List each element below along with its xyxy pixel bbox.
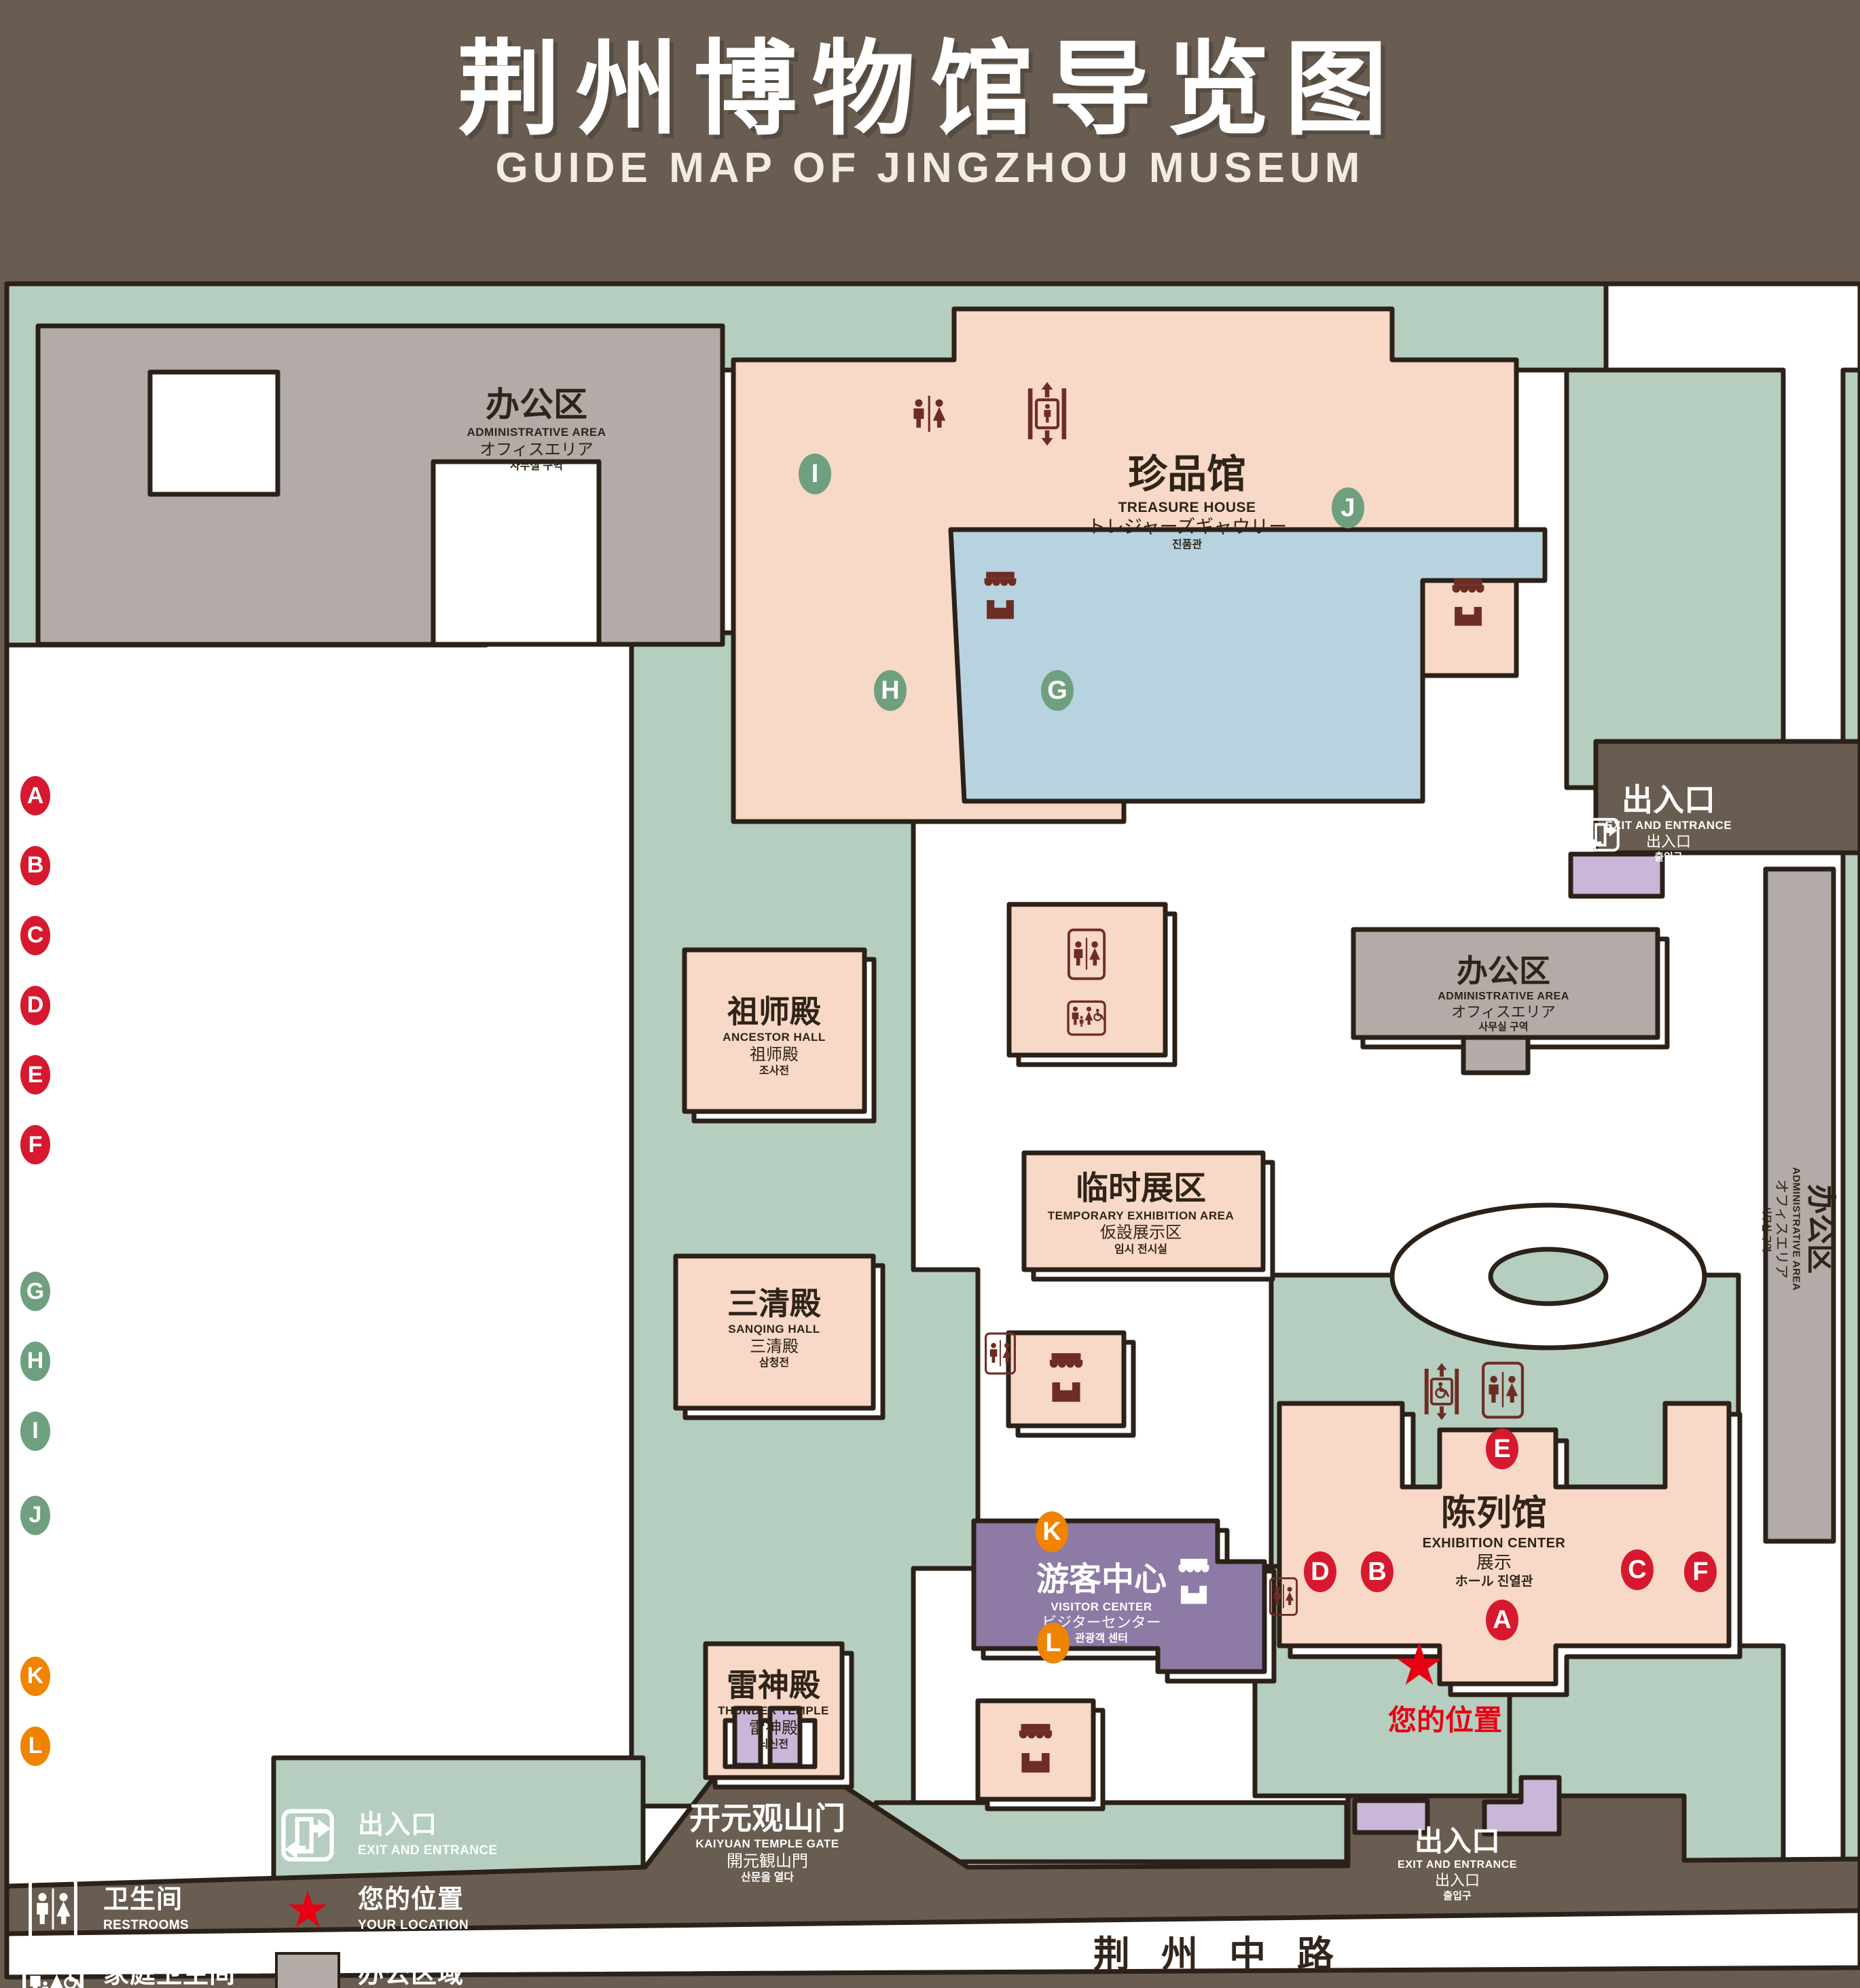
label-road: 荆州中路 — [1093, 1924, 1365, 1978]
item-name-en: JIANGHAN PLAIN PRIMITIVE CULTURE EXHIBIT… — [65, 951, 363, 965]
item-name-zh: 江汉平原原始文化展 — [65, 915, 363, 949]
lawn-right-edge — [1843, 370, 1860, 1860]
office-area-swatch — [275, 1952, 340, 1988]
symbol-label-zh: 家庭卫生间 — [103, 1961, 240, 1988]
badge-j: J — [20, 1496, 50, 1535]
item-floor: 2F — [474, 1125, 509, 1159]
admin-right-tab — [1463, 1037, 1528, 1073]
symbol-label-zh: 卫生间 — [103, 1886, 189, 1915]
item-floor: 2F — [474, 986, 509, 1020]
item-name-en: THE PHOENIX IN FIRE "MURAL PAINTING — [65, 812, 340, 826]
badge-e: E — [20, 1055, 50, 1094]
section-title-en: EXHIBITION CENTER — [170, 721, 456, 752]
item-floor: 1-2F — [448, 1496, 509, 1530]
store-icon — [1017, 1722, 1054, 1782]
legend-item-i: I 五大夫遂——凤凰山168号汉墓展 WUDAFU—EXHIBITION OF … — [20, 1410, 526, 1476]
item-name-zh: 五大夫遂——凤凰山168号汉墓展 — [65, 1410, 514, 1445]
store-icon — [20, 1803, 86, 1868]
restroom-icon — [20, 1877, 86, 1943]
item-name-en: INTERACTIVE EXPERIENCE HALL — [65, 1378, 261, 1392]
store-icon — [983, 570, 1018, 629]
legend-item-h: H 互动体验厅 INTERACTIVE EXPERIENCE HALL 1F — [20, 1340, 526, 1392]
badge-h: H — [20, 1342, 50, 1381]
badge-l: L — [20, 1727, 50, 1766]
symbol-office-area: 办公区域 OFFICE AREA — [275, 1951, 526, 1988]
item-name-zh: 《火中的凤凰》壁画 — [65, 775, 340, 809]
item-floor: 1F — [474, 1657, 509, 1691]
label-kaiyuan-gate: 开元观山门 KAIYUAN TEMPLE GATE 開元観山門 산문을 열다 — [689, 1799, 845, 1885]
map-badge-l: L — [1037, 1623, 1070, 1663]
section-title-zh: 珍品馆 — [20, 1194, 147, 1253]
item-name-zh: 互动体验厅 — [65, 1340, 261, 1375]
label-temporary-exhibition: 临时展区 TEMPORARY EXHIBITION AREA 仮設展示区 임시 … — [1048, 1169, 1234, 1256]
map-badge-a: A — [1486, 1600, 1518, 1640]
item-name-zh: 荆州出土瓷器展 — [65, 984, 359, 1019]
item-name-zh: 荆州出土简牍展 — [65, 1054, 369, 1088]
legend-item-l: L 医疗点 CLINIC 1F — [20, 1725, 526, 1777]
badge-a: A — [20, 776, 50, 815]
your-location-label: 您的位置 — [1388, 1697, 1502, 1739]
section-title-en: TREASURE HOUSE — [170, 1217, 433, 1247]
symbol-label-en: EXIT AND ENTRANCE — [358, 1843, 498, 1858]
item-name-en: CLINIC — [65, 1762, 157, 1776]
legend-section-visitor-center: 游客中心 VISITOR CENTER — [20, 1579, 526, 1638]
item-name-zh: 放映厅 — [65, 1270, 179, 1305]
restroom-icon — [908, 387, 950, 445]
store-icon — [1048, 1351, 1084, 1412]
legend-panel: 陈列馆 EXHIBITION CENTER A 《火中的凤凰》壁画 THE PH… — [20, 688, 526, 1988]
label-thunder-temple: 雷神殿 THUNDER TEMPLE 雷神殿 뇌신전 — [718, 1666, 829, 1752]
label-admin-right: 办公区 ADMINISTRATIVE AREA オフィスエリア 사무실 구역 — [1438, 952, 1569, 1034]
item-name-en: ROMANTIC CHARM OF THE CRIMSON LACQUERS—E… — [65, 1531, 445, 1560]
family-restroom-icon — [1067, 1001, 1106, 1039]
label-exhibition-center: 陈列馆 EXHIBITION CENTER 展示 ホール 진열관 — [1423, 1492, 1566, 1589]
legend-item-e: E 荆州出土简牍展 JINGZHOU EXCAVATED BAMBOO SLIP… — [20, 1054, 526, 1105]
item-name-zh: 医疗点 — [65, 1725, 157, 1760]
badge-f: F — [20, 1125, 50, 1164]
badge-d: D — [20, 986, 50, 1025]
symbol-label-zh: 办公区域 — [358, 1961, 464, 1988]
label-admin-top-left: 办公区 ADMINISTRATIVE AREA オフィスエリア 사무실 구역 — [467, 384, 606, 473]
accessible-elevator-icon — [1423, 1363, 1460, 1424]
label-treasure-house: 珍品馆 TREASURE HOUSE トレジャーズギャウリー 진품관 — [1087, 451, 1287, 552]
symbol-your-location: ★ 您的位置 YOUR LOCATION — [275, 1876, 526, 1944]
symbol-family-restrooms: 家庭卫生间 FAMILY RESTROOMS — [20, 1951, 275, 1988]
item-name-en: JINGZHOU EXCAVATED BAMBOO SLIPS EXHIBITI… — [65, 1091, 369, 1105]
legend-item-d: D 荆州出土瓷器展 JINGZHOU UNEARTHED PORCELAIN E… — [20, 984, 526, 1036]
item-name-zh: 荆州出土铜器展 — [65, 845, 371, 879]
item-name-en: JINGZHOU UNEARTHED BRONZE WARE EXHIBITIO… — [65, 881, 371, 896]
item-name-en: SECURITY — [65, 1693, 187, 1707]
family-restroom-icon — [20, 1957, 86, 1988]
lawn-right-upper — [1567, 370, 1783, 788]
restroom-icon — [985, 1333, 1016, 1378]
map-badge-g: G — [1041, 670, 1074, 711]
item-floor: 2F — [474, 1055, 509, 1089]
item-name-en: JINGZHOU UNEARTHED PORCELAIN EXHIBITIONE — [65, 1021, 359, 1035]
symbol-label-zh: 文创商店 — [103, 1811, 209, 1840]
item-floor: 1F — [474, 1727, 509, 1761]
badge-k: K — [20, 1657, 50, 1696]
item-floor: 1F — [474, 1342, 509, 1376]
item-floor: 1F — [474, 846, 509, 880]
item-floor: 1F — [474, 1272, 509, 1306]
item-floor: 1F — [474, 916, 509, 950]
symbol-label-zh: 出入口 — [358, 1811, 498, 1840]
badge-g: G — [20, 1272, 50, 1311]
store-icon — [1451, 576, 1486, 636]
label-admin-strip: 办公区 ADMINISTRATIVE AREA オフィスエリア 사무실 구역 — [1761, 1167, 1839, 1291]
item-floor: 1F — [474, 776, 509, 810]
symbol-exit: 出入口 EXIT AND ENTRANCE — [275, 1801, 526, 1869]
label-exit-top-right: 出入口 EXIT AND ENTRANCE 出入口 출입구 — [1605, 781, 1732, 864]
exit-icon — [275, 1809, 340, 1862]
legend-section-exhibition-center: 陈列馆 EXHIBITION CENTER — [20, 698, 526, 757]
restroom-icon — [1068, 929, 1106, 984]
legend-item-a: A 《火中的凤凰》壁画 THE PHOENIX IN FIRE "MURAL P… — [20, 775, 526, 826]
section-title-zh: 游客中心 — [20, 1579, 189, 1638]
admin-courtyard-1 — [150, 372, 278, 494]
location-star-icon: ★ — [1393, 1636, 1445, 1694]
map-badge-d: D — [1304, 1551, 1336, 1592]
map-badge-c: C — [1621, 1549, 1654, 1590]
map-badge-h: H — [874, 670, 907, 711]
item-name-zh: 安全保卫 — [65, 1655, 187, 1690]
symbol-label-en: RESTROOMS — [103, 1918, 189, 1933]
badge-i: I — [20, 1412, 50, 1451]
legend-item-b: B 荆州出土铜器展 JINGZHOU UNEARTHED BRONZE WARE… — [20, 845, 526, 896]
admin-building-top-left — [38, 326, 723, 644]
map-badge-i: I — [799, 454, 831, 494]
item-name-en: PROJECTION HALL — [65, 1308, 179, 1322]
legend-item-j: J 丹漆神韵——楚秦汉漆器精品展 ROMANTIC CHARM OF THE C… — [20, 1494, 526, 1560]
legend-item-g: G 放映厅 PROJECTION HALL 1F — [20, 1270, 526, 1322]
map-badge-k: K — [1036, 1511, 1068, 1552]
legend-item-f: F 荆州出土玉器展 JINGZHOU UNEARTHED JADE EXHIBI… — [20, 1124, 526, 1175]
admin-courtyard-2 — [433, 462, 599, 644]
legend-section-treasure-house: 珍品馆 TREASURE HOUSE — [20, 1194, 526, 1253]
item-name-en: JINGZHOU UNEARTHED JADE EXHIBITION — [65, 1161, 313, 1175]
garden-island — [1491, 1249, 1606, 1304]
location-star-icon: ★ — [275, 1885, 340, 1935]
legend-item-k: K 安全保卫 SECURITY 1F — [20, 1655, 526, 1707]
item-name-zh: 荆州出土玉器展 — [65, 1124, 313, 1158]
map-badge-j: J — [1332, 487, 1364, 528]
item-floor: 2F — [474, 1412, 509, 1446]
section-title-zh: 陈列馆 — [20, 698, 147, 757]
section-title-en: VISITOR CENTER — [212, 1602, 449, 1632]
symbol-label-en: YOUR LOCATION — [358, 1918, 469, 1933]
item-name-zh: 丹漆神韵——楚秦汉漆器精品展 — [65, 1494, 493, 1529]
label-sanqing-hall: 三清殿 SANQING HALL 三清殿 삼청전 — [727, 1285, 821, 1370]
exit-icon — [1586, 818, 1620, 855]
symbol-label-zh: 您的位置 — [358, 1886, 469, 1915]
restroom-icon — [1482, 1362, 1524, 1422]
item-name-en: WUDAFU—EXHIBITION OF NO.168 HAN TOMB FRO… — [65, 1447, 445, 1476]
legend-item-c: C 江汉平原原始文化展 JIANGHAN PLAIN PRIMITIVE CUL… — [20, 915, 526, 966]
restroom-icon — [1269, 1577, 1298, 1620]
label-exit-bottom: 出入口 EXIT AND ENTRANCE 出入口 출입구 — [1398, 1824, 1517, 1902]
map-badge-f: F — [1684, 1551, 1717, 1592]
label-ancestor-hall: 祖师殿 ANCESTOR HALL 祖师殿 조사전 — [723, 993, 826, 1078]
symbol-restrooms: 卫生间 RESTROOMS — [20, 1876, 275, 1944]
map-badge-e: E — [1486, 1429, 1518, 1469]
guide-map-poster: 荆州博物馆导览图 GUIDE MAP OF JINGZHOU MUSEUM — [0, 0, 1860, 1988]
symbol-legend: 文创商店 STORE 出入口 EXIT AND ENTRANCE 卫生间 RES… — [20, 1801, 526, 1988]
store-icon — [1177, 1557, 1211, 1613]
map-badge-b: B — [1361, 1551, 1393, 1592]
symbol-store: 文创商店 STORE — [20, 1801, 275, 1869]
badge-c: C — [20, 916, 50, 955]
elevator-icon — [1027, 382, 1068, 449]
badge-b: B — [20, 846, 50, 885]
symbol-label-en: STORE — [103, 1843, 209, 1858]
